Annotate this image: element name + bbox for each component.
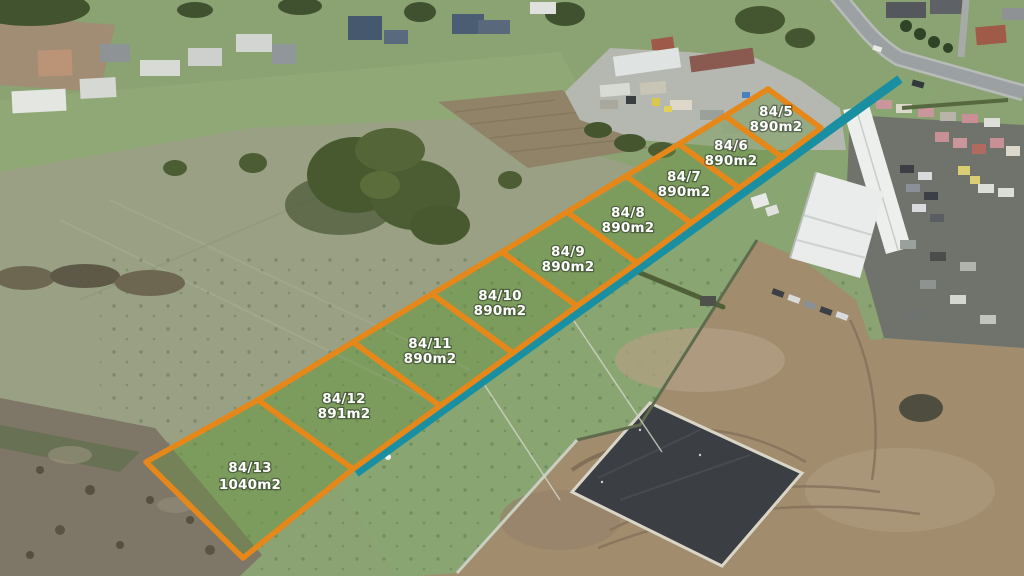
plot-84-9-area: 890m2 — [542, 259, 595, 275]
plot-84-9-label: 84/9 — [551, 244, 585, 260]
plot-84-7-area: 890m2 — [658, 184, 711, 200]
plot-84-12-area: 891m2 — [318, 406, 371, 422]
aerial-photo: 84/5 890m2 84/6 890m2 84/7 890m2 84/8 89… — [0, 0, 1024, 576]
plot-84-6-label: 84/6 — [714, 138, 748, 154]
plot-84-12-label: 84/12 — [322, 391, 366, 407]
plot-84-13-label: 84/13 — [228, 460, 272, 476]
plot-84-5-area: 890m2 — [750, 119, 803, 135]
aerial-photo-listing: 84/5 890m2 84/6 890m2 84/7 890m2 84/8 89… — [0, 0, 1024, 576]
plot-84-10-label: 84/10 — [478, 288, 522, 304]
plot-84-8-label: 84/8 — [611, 205, 645, 221]
plot-84-10-area: 890m2 — [474, 303, 527, 319]
plot-84-8-area: 890m2 — [602, 220, 655, 236]
plot-84-7-label: 84/7 — [667, 169, 701, 185]
plot-84-11-label: 84/11 — [408, 336, 452, 352]
dark-pond — [899, 394, 943, 422]
plot-84-13-area: 1040m2 — [219, 477, 281, 493]
plot-84-6-area: 890m2 — [705, 153, 758, 169]
plot-84-11-area: 890m2 — [404, 351, 457, 367]
plot-84-5-label: 84/5 — [759, 104, 793, 120]
